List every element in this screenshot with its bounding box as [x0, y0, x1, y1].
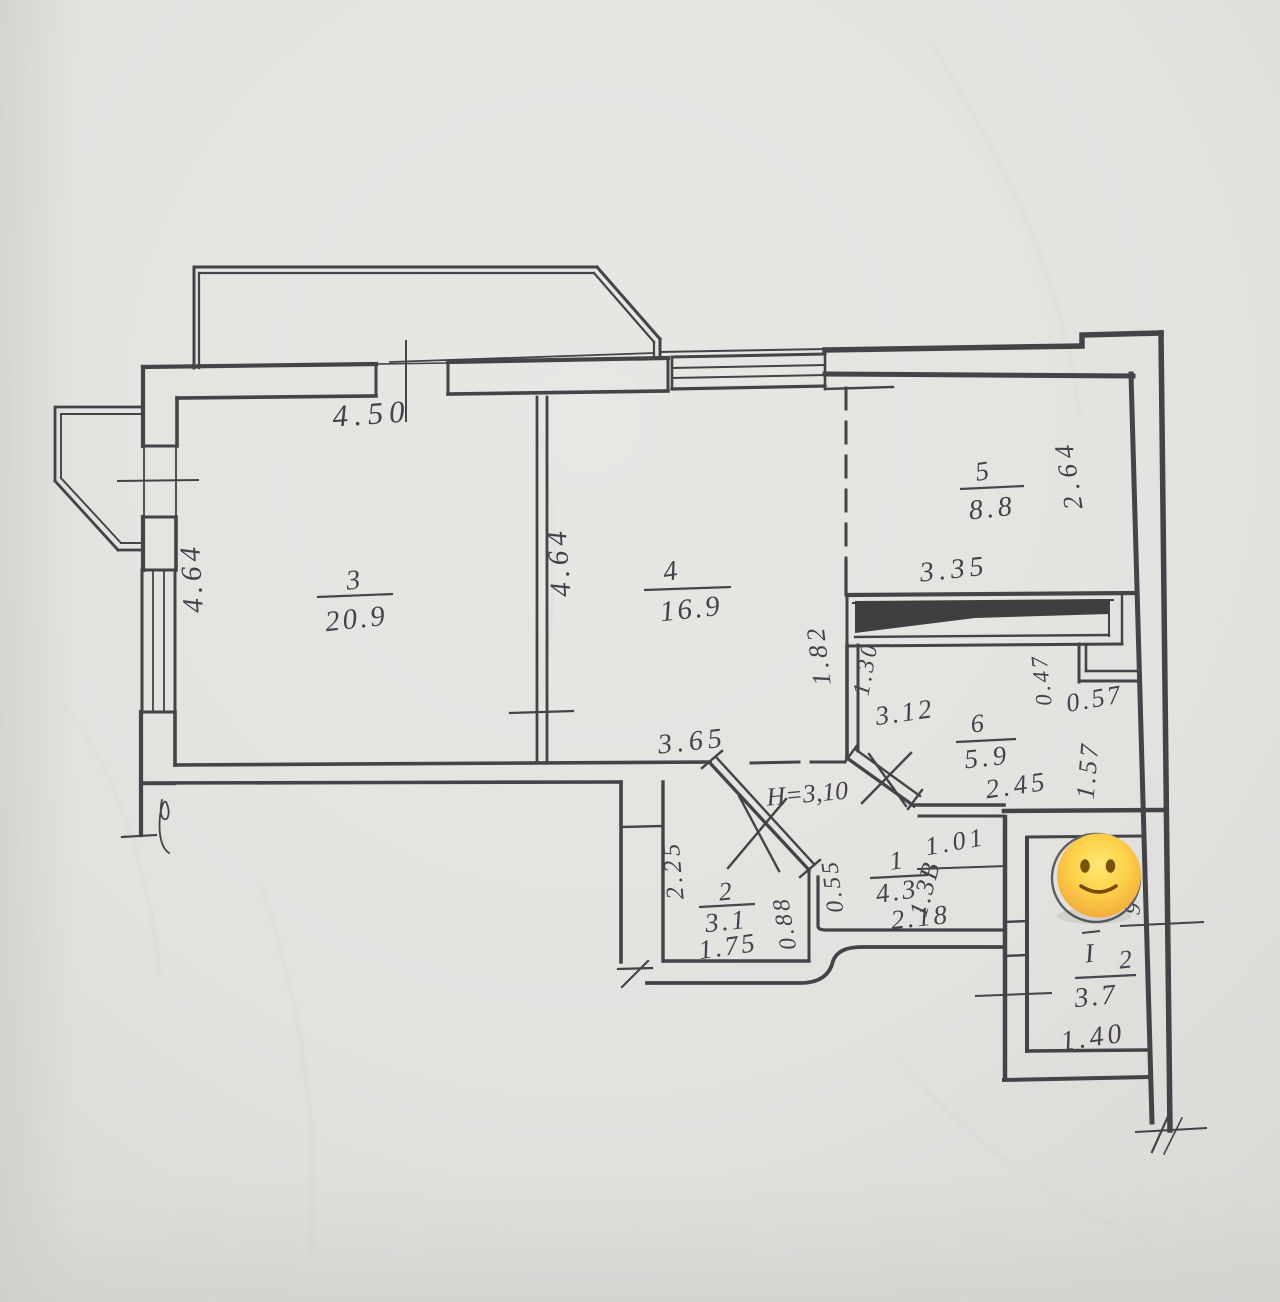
svg-text:8.8: 8.8: [967, 491, 1017, 527]
svg-text:4.64: 4.64: [174, 541, 210, 613]
svg-text:3.7: 3.7: [1072, 979, 1120, 1015]
svg-text:16.9: 16.9: [658, 590, 724, 628]
svg-text:20.9: 20.9: [323, 600, 389, 638]
svg-text:5.9: 5.9: [963, 740, 1012, 775]
svg-text:4.50: 4.50: [331, 393, 412, 433]
svg-text:1.57: 1.57: [1071, 740, 1105, 800]
svg-text:4.64: 4.64: [541, 525, 578, 598]
svg-text:2.25: 2.25: [657, 839, 689, 901]
